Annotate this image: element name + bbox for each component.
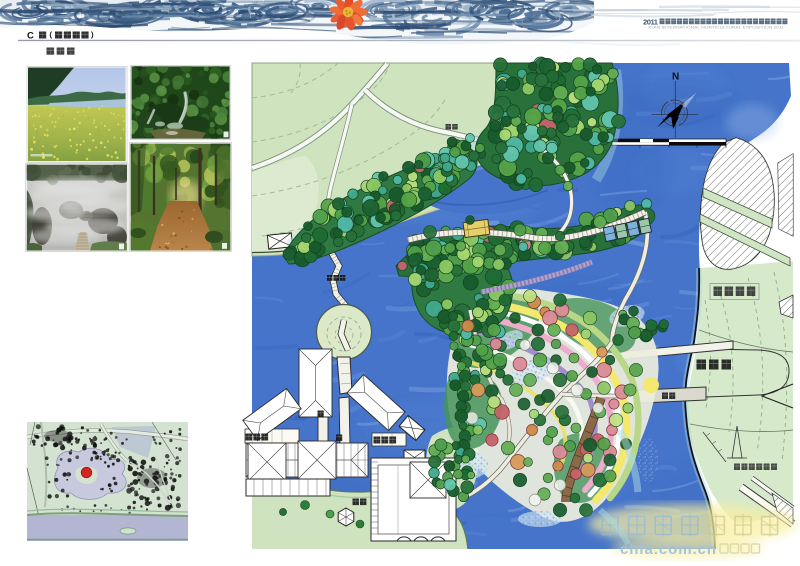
svg-text:chla.com.cn: chla.com.cn	[620, 541, 716, 558]
svg-text:C: C	[27, 30, 34, 41]
svg-text:XI'AN INTERNATIONAL HORTICULTU: XI'AN INTERNATIONAL HORTICULTURAL EXPOSI…	[648, 26, 784, 30]
svg-text:N: N	[672, 71, 679, 82]
